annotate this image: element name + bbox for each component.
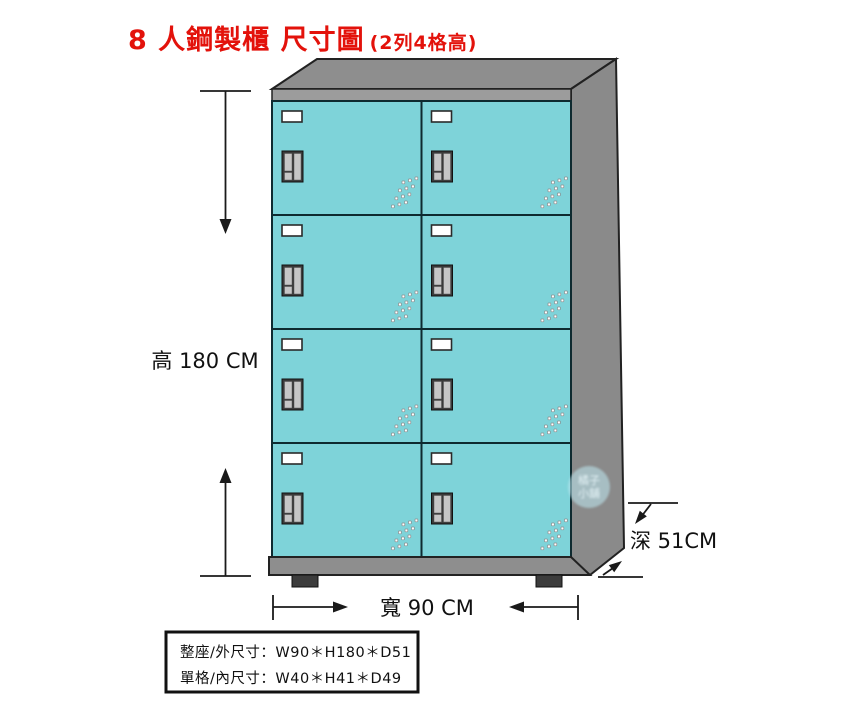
- vent-hole: [415, 177, 418, 180]
- handle-latch-top: [434, 268, 442, 286]
- vent-hole: [565, 291, 568, 294]
- diagram-canvas: 8 人鋼製櫃 尺寸圖(2列4格高) 橘子 小舖 高 180 CM: [0, 0, 843, 720]
- vent-hole: [392, 547, 395, 550]
- page-title: 8 人鋼製櫃 尺寸圖(2列4格高): [128, 25, 477, 56]
- vent-hole: [412, 299, 415, 302]
- name-card-slot: [282, 339, 302, 350]
- vent-hole: [399, 189, 402, 192]
- handle-latch-top: [285, 268, 293, 286]
- handle-latch-top: [285, 496, 293, 514]
- handle-latch-bottom: [434, 515, 442, 523]
- vent-hole: [558, 421, 561, 424]
- title-main: 8 人鋼製櫃 尺寸圖: [128, 25, 365, 56]
- handle-latch-bottom: [434, 173, 442, 181]
- vent-hole: [565, 177, 568, 180]
- vent-hole: [552, 295, 555, 298]
- handle-latch-top: [285, 154, 293, 172]
- vent-hole: [561, 299, 564, 302]
- door-handle: [282, 151, 303, 182]
- info-box: 整座/外尺寸：W90＊H180＊D51 單格/內尺寸：W40＊H41＊D49: [166, 632, 418, 692]
- door-handle: [282, 265, 303, 296]
- vent-hole: [565, 519, 568, 522]
- vent-hole: [409, 407, 412, 410]
- vent-hole: [405, 415, 408, 418]
- door-handle: [432, 379, 453, 410]
- vent-hole: [399, 303, 402, 306]
- width-arrow-left-icon: [509, 602, 524, 613]
- vent-hole: [541, 433, 544, 436]
- door-handle: [282, 493, 303, 524]
- vent-hole: [545, 311, 548, 314]
- vent-hole: [392, 205, 395, 208]
- cabinet-foot-left: [292, 575, 318, 587]
- depth-label: 深 51CM: [630, 529, 717, 553]
- vent-hole: [541, 319, 544, 322]
- vent-hole: [561, 413, 564, 416]
- vent-hole: [405, 301, 408, 304]
- handle-grip: [294, 496, 301, 523]
- door-handle: [432, 151, 453, 182]
- name-card-slot: [432, 225, 452, 236]
- width-dimension: 寬 90 CM: [273, 595, 578, 620]
- handle-latch-top: [434, 382, 442, 400]
- vent-hole: [408, 307, 411, 310]
- vent-hole: [558, 521, 561, 524]
- vent-hole: [395, 425, 398, 428]
- cabinet-top-surface: [272, 59, 616, 89]
- info-line-compartment: 單格/內尺寸：W40＊H41＊D49: [180, 670, 402, 687]
- vent-hole: [402, 295, 405, 298]
- vent-hole: [558, 193, 561, 196]
- vent-hole: [555, 415, 558, 418]
- depth-bottom-line: [603, 568, 613, 575]
- watermark-text-bottom: 小舖: [578, 486, 600, 500]
- vent-hole: [408, 193, 411, 196]
- vent-hole: [548, 189, 551, 192]
- vent-hole: [398, 203, 401, 206]
- vent-hole: [402, 409, 405, 412]
- locker-dimension-diagram: 8 人鋼製櫃 尺寸圖(2列4格高) 橘子 小舖 高 180 CM: [0, 0, 843, 720]
- vent-hole: [558, 179, 561, 182]
- handle-grip: [444, 154, 451, 181]
- name-card-slot: [282, 111, 302, 122]
- vent-hole: [409, 521, 412, 524]
- handle-grip: [294, 268, 301, 295]
- vent-hole: [399, 417, 402, 420]
- vent-hole: [551, 423, 554, 426]
- vent-hole: [402, 195, 405, 198]
- handle-latch-bottom: [434, 401, 442, 409]
- cabinet-foot-right: [536, 575, 562, 587]
- vent-hole: [402, 181, 405, 184]
- vent-hole: [405, 529, 408, 532]
- cabinet: 橘子 小舖: [269, 59, 624, 587]
- vent-hole: [558, 307, 561, 310]
- vent-hole: [402, 537, 405, 540]
- vent-hole: [555, 187, 558, 190]
- vent-hole: [554, 201, 557, 204]
- locker-door: [422, 101, 572, 215]
- vent-hole: [408, 421, 411, 424]
- name-card-slot: [432, 111, 452, 122]
- vent-hole: [415, 291, 418, 294]
- handle-grip: [294, 154, 301, 181]
- vent-hole: [405, 543, 408, 546]
- vent-hole: [395, 539, 398, 542]
- name-card-slot: [432, 339, 452, 350]
- handle-grip: [444, 496, 451, 523]
- locker-door: [272, 101, 422, 215]
- vent-hole: [561, 185, 564, 188]
- vent-hole: [548, 545, 551, 548]
- name-card-slot: [282, 225, 302, 236]
- cabinet-top-frame: [272, 89, 571, 101]
- vent-hole: [409, 179, 412, 182]
- vent-hole: [392, 319, 395, 322]
- handle-latch-top: [434, 496, 442, 514]
- locker-door: [272, 329, 422, 443]
- vent-hole: [541, 205, 544, 208]
- vent-hole: [558, 535, 561, 538]
- name-card-slot: [282, 453, 302, 464]
- vent-hole: [402, 309, 405, 312]
- vent-hole: [545, 197, 548, 200]
- vent-hole: [415, 519, 418, 522]
- vent-hole: [399, 531, 402, 534]
- vent-hole: [558, 293, 561, 296]
- locker-door: [272, 443, 422, 557]
- vent-hole: [408, 535, 411, 538]
- vent-hole: [555, 529, 558, 532]
- vent-hole: [409, 293, 412, 296]
- door-handle: [432, 265, 453, 296]
- vent-hole: [548, 431, 551, 434]
- vent-hole: [552, 409, 555, 412]
- handle-grip: [444, 382, 451, 409]
- vent-hole: [395, 311, 398, 314]
- handle-latch-bottom: [285, 515, 293, 523]
- vent-hole: [415, 405, 418, 408]
- handle-latch-top: [434, 154, 442, 172]
- handle-latch-bottom: [285, 287, 293, 295]
- locker-door: [422, 329, 572, 443]
- height-arrow-down-icon: [220, 219, 232, 234]
- door-handle: [432, 493, 453, 524]
- vent-hole: [412, 185, 415, 188]
- cabinet-base: [269, 557, 590, 575]
- height-dimension: 高 180 CM: [151, 91, 258, 576]
- vent-hole: [398, 545, 401, 548]
- height-label: 高 180 CM: [151, 349, 258, 373]
- vent-hole: [551, 309, 554, 312]
- locker-doors: [272, 101, 571, 557]
- vent-hole: [395, 197, 398, 200]
- title-suffix: (2列4格高): [370, 31, 478, 54]
- locker-door: [422, 215, 572, 329]
- vent-hole: [548, 303, 551, 306]
- vent-hole: [398, 431, 401, 434]
- handle-latch-bottom: [285, 173, 293, 181]
- locker-door: [422, 443, 572, 557]
- handle-grip: [444, 268, 451, 295]
- handle-latch-bottom: [434, 287, 442, 295]
- vent-hole: [545, 425, 548, 428]
- watermark: 橘子 小舖: [568, 466, 610, 508]
- vent-hole: [548, 417, 551, 420]
- vent-hole: [405, 201, 408, 204]
- vent-hole: [554, 543, 557, 546]
- vent-hole: [402, 523, 405, 526]
- vent-hole: [552, 181, 555, 184]
- watermark-text-top: 橘子: [578, 474, 600, 487]
- door-handle: [282, 379, 303, 410]
- name-card-slot: [432, 453, 452, 464]
- width-arrow-right-icon: [333, 602, 348, 613]
- vent-hole: [555, 301, 558, 304]
- vent-hole: [548, 203, 551, 206]
- height-arrow-up-icon: [220, 468, 232, 483]
- vent-hole: [412, 413, 415, 416]
- vent-hole: [398, 317, 401, 320]
- vent-hole: [402, 423, 405, 426]
- vent-hole: [558, 407, 561, 410]
- vent-hole: [405, 187, 408, 190]
- vent-hole: [554, 315, 557, 318]
- vent-hole: [405, 429, 408, 432]
- vent-hole: [541, 547, 544, 550]
- vent-hole: [405, 315, 408, 318]
- vent-hole: [551, 537, 554, 540]
- width-label: 寬 90 CM: [380, 596, 474, 620]
- vent-hole: [412, 527, 415, 530]
- handle-latch-bottom: [285, 401, 293, 409]
- vent-hole: [545, 539, 548, 542]
- vent-hole: [552, 523, 555, 526]
- handle-latch-top: [285, 382, 293, 400]
- vent-hole: [561, 527, 564, 530]
- handle-grip: [294, 382, 301, 409]
- vent-hole: [548, 317, 551, 320]
- info-line-overall: 整座/外尺寸：W90＊H180＊D51: [180, 644, 411, 661]
- vent-hole: [554, 429, 557, 432]
- vent-hole: [551, 195, 554, 198]
- locker-door: [272, 215, 422, 329]
- vent-hole: [392, 433, 395, 436]
- vent-hole: [548, 531, 551, 534]
- vent-hole: [565, 405, 568, 408]
